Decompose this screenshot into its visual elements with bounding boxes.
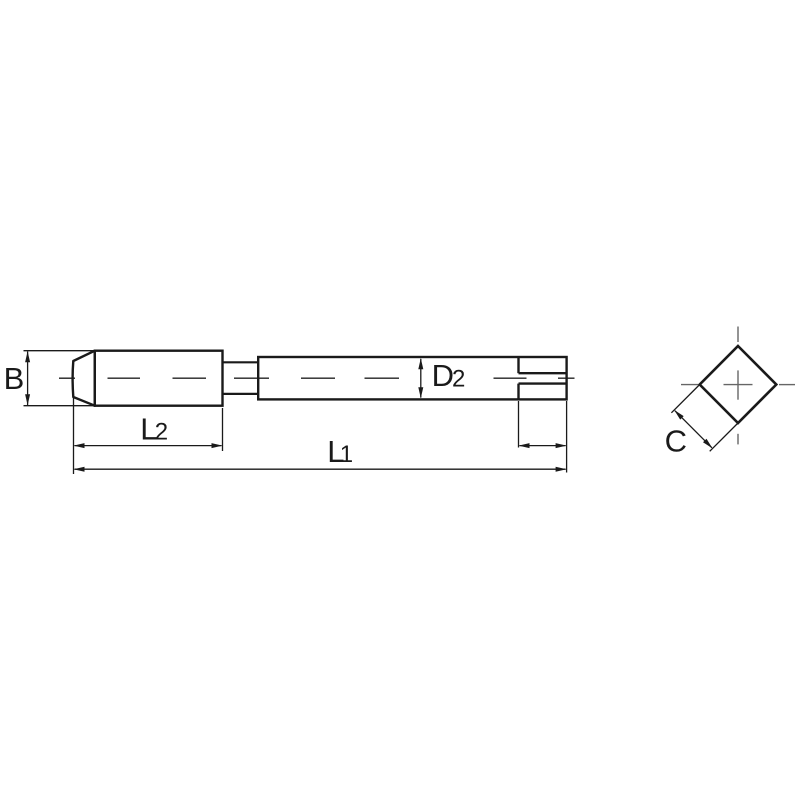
svg-text:B: B bbox=[4, 361, 25, 396]
svg-text:2: 2 bbox=[452, 366, 465, 393]
svg-text:C: C bbox=[665, 423, 687, 458]
svg-text:2: 2 bbox=[155, 419, 168, 446]
svg-text:1: 1 bbox=[340, 441, 353, 468]
svg-text:D: D bbox=[432, 358, 454, 393]
